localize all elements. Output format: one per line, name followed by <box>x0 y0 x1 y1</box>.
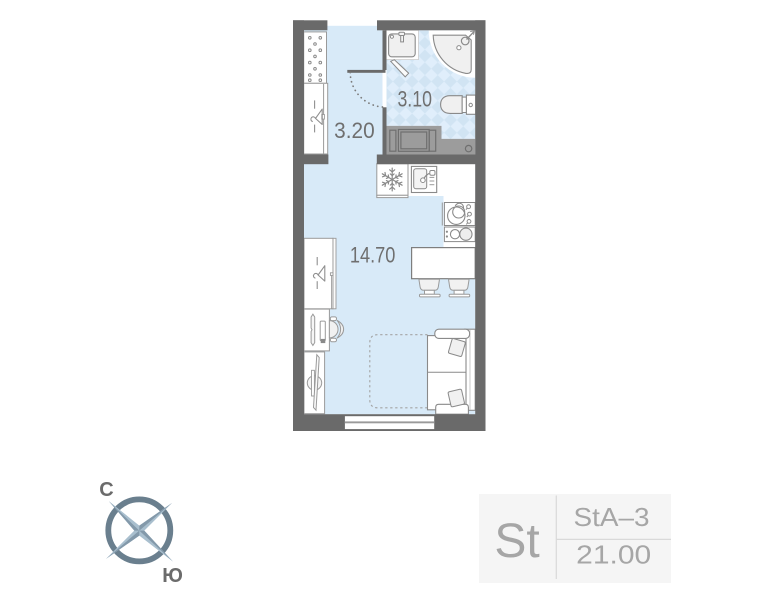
svg-text:3.20: 3.20 <box>334 118 375 143</box>
svg-text:St: St <box>494 515 539 568</box>
svg-text:21.00: 21.00 <box>576 540 651 570</box>
svg-text:14.70: 14.70 <box>350 242 396 267</box>
svg-text:Ю: Ю <box>162 565 183 587</box>
svg-text:StA–3: StA–3 <box>574 502 650 532</box>
svg-text:С: С <box>99 479 113 501</box>
svg-text:3.10: 3.10 <box>397 86 432 111</box>
